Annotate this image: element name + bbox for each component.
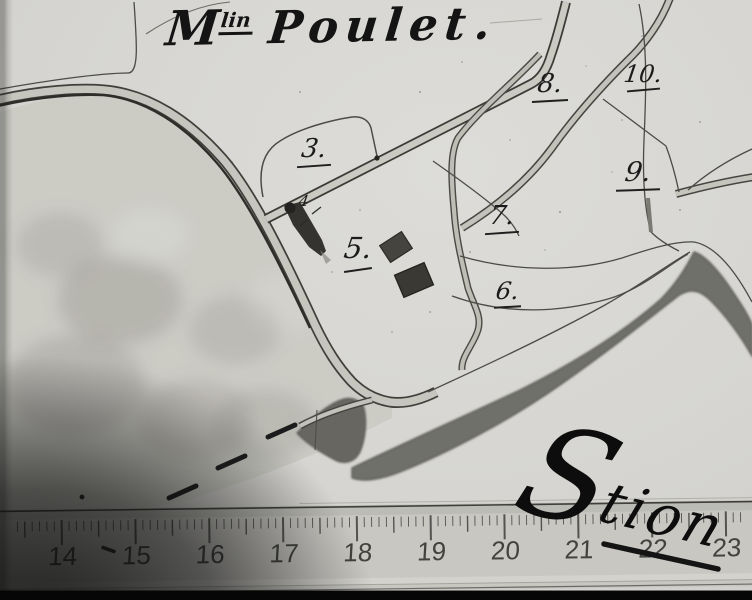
title-superscript: lin — [218, 8, 254, 36]
parcel-label-5: 5. — [344, 234, 372, 271]
parcel-label-3: 3. — [297, 136, 331, 167]
ruler-number: 15 — [121, 540, 152, 570]
ruler-number: 17 — [269, 538, 300, 568]
title-main: Poulet — [266, 0, 475, 54]
map-photo: 14151617181920212223 MlinPoulet. 3. 4 5.… — [0, 0, 752, 600]
road-junction-dot — [374, 155, 379, 160]
parcel-label-6: 6. — [494, 279, 521, 308]
ruler-number: 16 — [195, 539, 226, 569]
bottom-photo-edge — [0, 591, 752, 600]
ruler-number: 19 — [416, 536, 447, 566]
title-initial: M — [163, 0, 222, 57]
parcel-label-7: 7. — [485, 203, 519, 234]
parcel-label-8: 8. — [532, 71, 568, 102]
small-mark — [80, 495, 85, 500]
parcel-label-4: 4 — [299, 194, 309, 209]
map-title: MlinPoulet. — [163, 0, 493, 57]
ruler-number: 18 — [343, 537, 374, 567]
parcel-label-9: 9. — [616, 159, 660, 191]
parcel-label-10: 10. — [624, 62, 662, 91]
ruler-number: 14 — [47, 541, 78, 571]
mill-marker-dot — [285, 203, 296, 214]
